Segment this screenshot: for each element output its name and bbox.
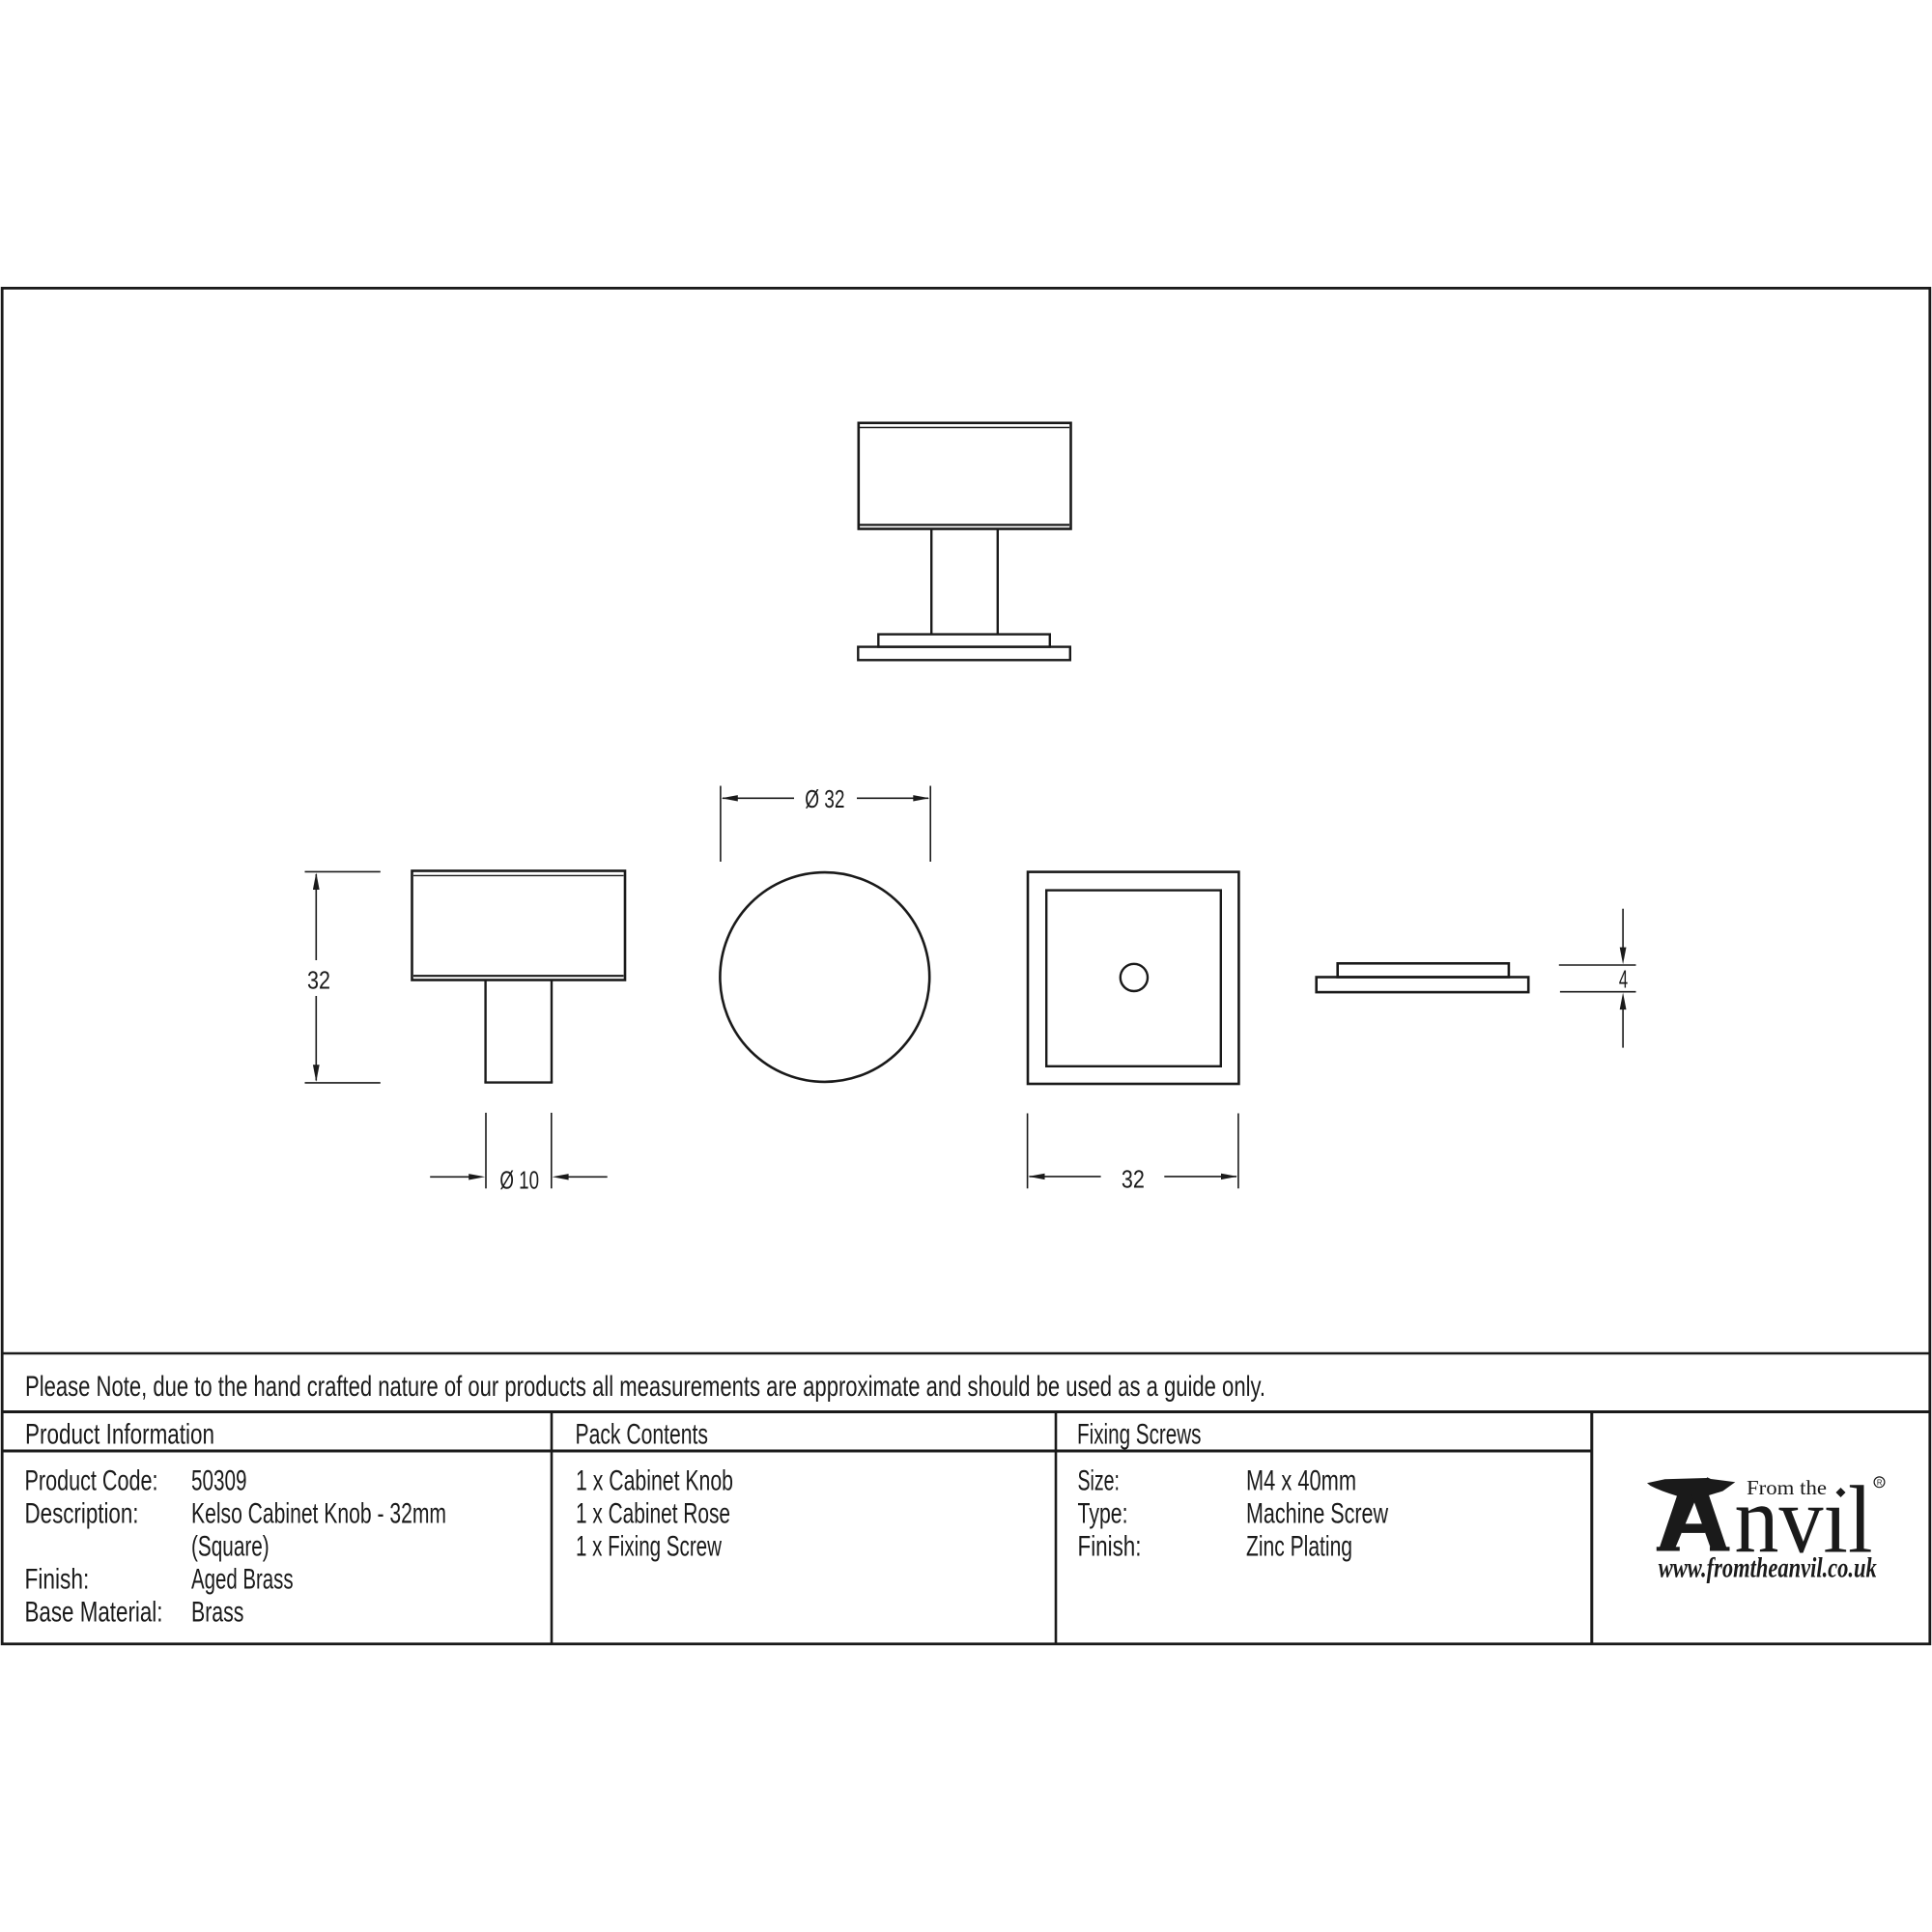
svg-text:Product Code:: Product Code: — [25, 1465, 158, 1497]
svg-text:Description:: Description: — [25, 1498, 139, 1530]
svg-text:1 x Cabinet Rose: 1 x Cabinet Rose — [576, 1498, 730, 1530]
svg-text:(Square): (Square) — [191, 1531, 270, 1563]
svg-text:Base Material:: Base Material: — [25, 1597, 163, 1629]
svg-text:32: 32 — [1122, 1165, 1145, 1194]
svg-text:32: 32 — [307, 966, 330, 995]
svg-text:Ø 10: Ø 10 — [499, 1165, 539, 1194]
svg-text:1 x Cabinet Knob: 1 x Cabinet Knob — [576, 1465, 733, 1497]
svg-text:M4 x 40mm: M4 x 40mm — [1246, 1465, 1356, 1497]
svg-text:Please Note, due to the hand c: Please Note, due to the hand crafted nat… — [25, 1371, 1265, 1403]
svg-text:R: R — [1877, 1477, 1883, 1487]
svg-text:Kelso Cabinet Knob - 32mm: Kelso Cabinet Knob - 32mm — [191, 1498, 446, 1530]
svg-text:Brass: Brass — [191, 1597, 243, 1629]
svg-text:www.fromtheanvil.co.uk: www.fromtheanvil.co.uk — [1659, 1552, 1877, 1584]
svg-text:Fixing Screws: Fixing Screws — [1077, 1419, 1202, 1451]
svg-text:Machine Screw: Machine Screw — [1246, 1498, 1388, 1530]
svg-text:50309: 50309 — [191, 1465, 247, 1497]
svg-text:Pack Contents: Pack Contents — [576, 1419, 709, 1451]
svg-text:Ø 32: Ø 32 — [805, 784, 844, 813]
svg-text:Size:: Size: — [1078, 1465, 1121, 1497]
svg-text:4: 4 — [1619, 965, 1628, 994]
svg-text:Type:: Type: — [1078, 1498, 1128, 1530]
svg-text:Aged Brass: Aged Brass — [191, 1564, 294, 1596]
svg-text:Zinc Plating: Zinc Plating — [1246, 1531, 1352, 1563]
svg-text:1 x Fixing Screw: 1 x Fixing Screw — [576, 1531, 722, 1563]
svg-text:Finish:: Finish: — [25, 1564, 90, 1596]
svg-text:Product Information: Product Information — [25, 1419, 214, 1451]
svg-text:Finish:: Finish: — [1078, 1531, 1142, 1563]
